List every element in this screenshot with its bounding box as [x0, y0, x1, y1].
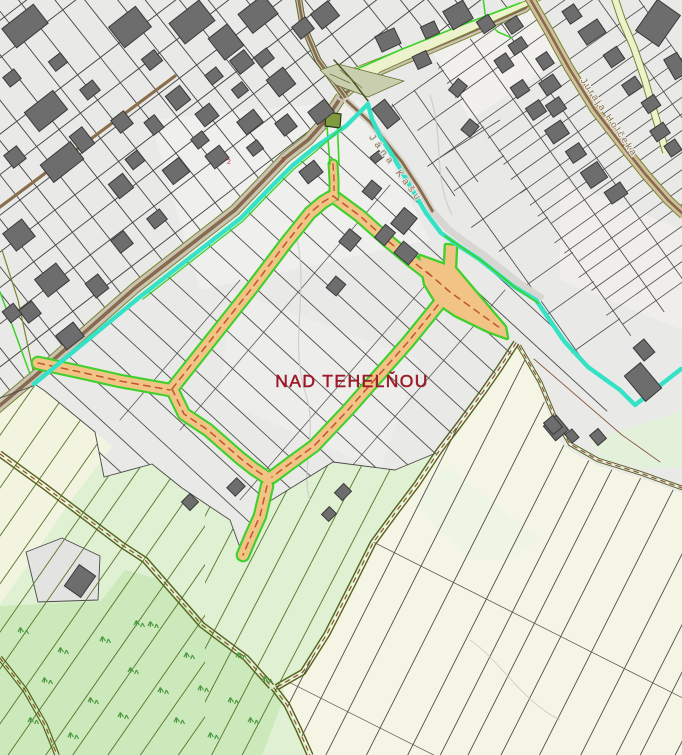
svg-text:2: 2: [227, 159, 231, 166]
svg-text:2: 2: [281, 157, 285, 164]
svg-text:NAD TEHELŇOU: NAD TEHELŇOU: [275, 371, 429, 391]
